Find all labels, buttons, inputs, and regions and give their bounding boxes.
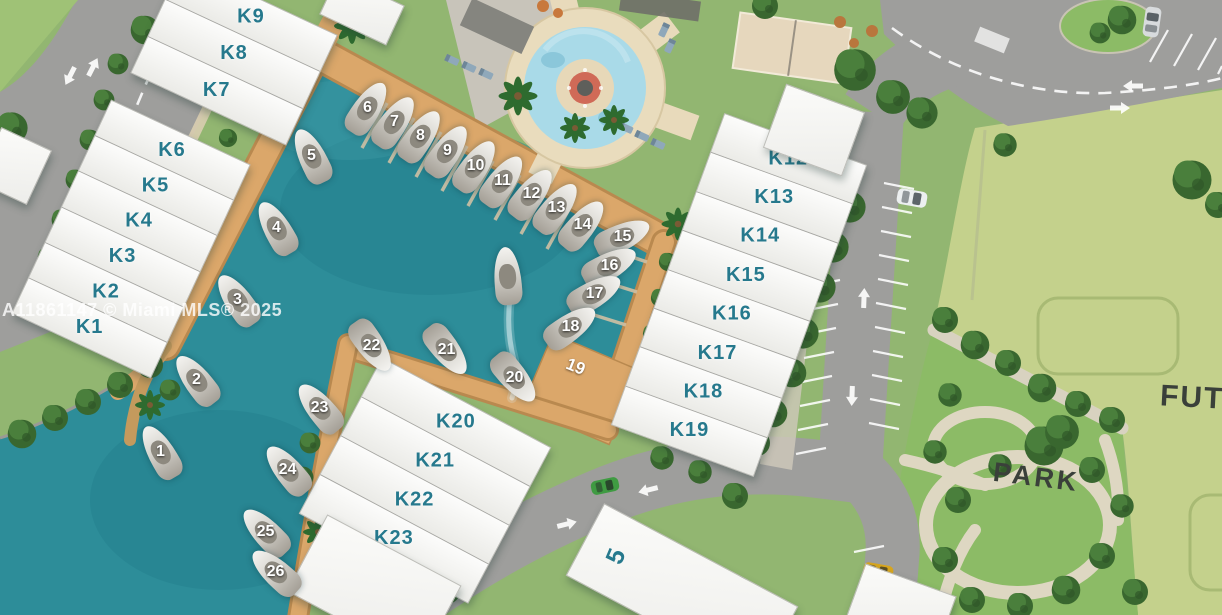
unit-label-k17: K17 bbox=[698, 342, 738, 365]
slip-number: 20 bbox=[501, 349, 528, 407]
unit-label-k9: K9 bbox=[237, 6, 265, 29]
unit-label-k6: K6 bbox=[159, 139, 187, 162]
unit-label-partial: 5 bbox=[601, 544, 633, 568]
slip-number: 2 bbox=[183, 351, 210, 409]
unit-label-k13: K13 bbox=[755, 186, 795, 209]
slip-number: 26 bbox=[262, 543, 289, 601]
slip-number: 23 bbox=[306, 379, 333, 437]
unit-label-k5: K5 bbox=[142, 174, 170, 197]
slip-number: 21 bbox=[433, 321, 460, 379]
unit-label-k22: K22 bbox=[395, 488, 435, 511]
slip-number: 24 bbox=[274, 441, 301, 499]
future-development-label: FUT bbox=[1159, 379, 1222, 416]
unit-label-k19: K19 bbox=[670, 420, 710, 443]
unit-label-k7: K7 bbox=[203, 79, 231, 102]
unit-label-k18: K18 bbox=[684, 381, 724, 404]
slip-number: 18 bbox=[557, 298, 584, 356]
slip-number: 1 bbox=[147, 423, 174, 481]
unit-label-k20: K20 bbox=[436, 411, 476, 434]
marina-site-plan: K9 K8 K7 K6 K5 K4 K3 K2 K1 K12 K13 K14 K… bbox=[0, 0, 1222, 615]
unit-label-k16: K16 bbox=[712, 303, 752, 326]
unit-label-k15: K15 bbox=[726, 264, 766, 287]
mls-watermark: A11861147 © Miami MLS® 2025 bbox=[2, 300, 282, 321]
unit-label-k8: K8 bbox=[220, 42, 248, 65]
unit-label-k14: K14 bbox=[740, 225, 780, 248]
slip-number: 14 bbox=[569, 196, 596, 254]
unit-label-k3: K3 bbox=[109, 245, 137, 268]
slip-number: 22 bbox=[358, 317, 385, 375]
unit-label-k4: K4 bbox=[125, 210, 153, 233]
unit-label-k21: K21 bbox=[415, 450, 455, 473]
slip-number: 4 bbox=[263, 199, 290, 257]
slip-number: 5 bbox=[298, 127, 325, 185]
